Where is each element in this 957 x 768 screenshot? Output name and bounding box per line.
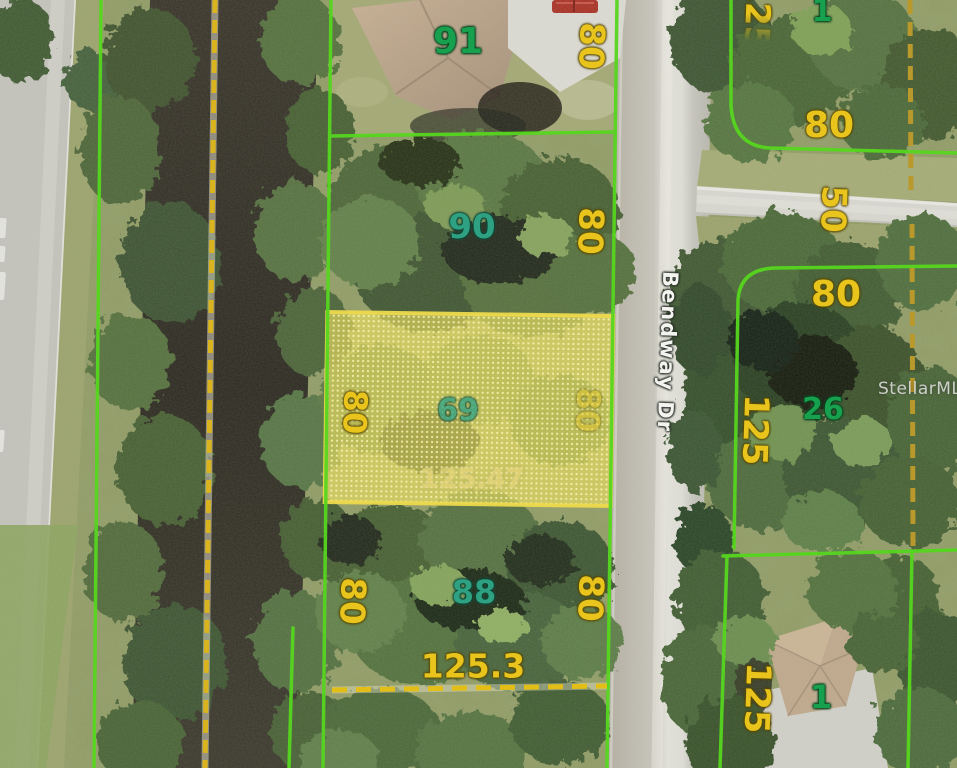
lot-1-top-label: 1 (812, 0, 833, 27)
dim-125-bottom-right: 125 (739, 662, 775, 734)
lot-88-label: 88 (452, 576, 497, 608)
aerial-parcel-map: 91 80 90 80 69 80 80 125.47 88 80 80 125… (0, 0, 957, 768)
dim-80-lot90: 80 (572, 207, 608, 255)
dim-80-lot88-west: 80 (334, 577, 370, 625)
dim-80-mid-right: 80 (811, 277, 861, 313)
dim-50-road: 50 (815, 185, 851, 233)
dim-125-47-lot69: 125.47 (420, 466, 524, 493)
dim-80-lot88-east: 80 (572, 574, 608, 622)
lot-1-bottom-label: 1 (810, 681, 832, 713)
lot-90-label: 90 (448, 210, 495, 244)
dim-125-3-lot88: 125.3 (421, 650, 525, 683)
street-label-bendway-dr: Bendway Dr (654, 271, 681, 434)
lot-69-label: 69 (437, 396, 479, 426)
dim-125-top-right-clipped: 125 (739, 0, 775, 50)
dim-80-top-right: 80 (804, 108, 854, 144)
dim-125-mid-right: 125 (737, 394, 773, 466)
dim-80-lot69-east: 80 (571, 387, 605, 433)
mls-watermark: StellarMLS (878, 379, 957, 399)
lot-26-label: 26 (802, 395, 844, 425)
dim-80-lot69-west: 80 (338, 389, 372, 435)
dim-80-lot91: 80 (573, 22, 609, 70)
east-easement-dash-top (910, 0, 911, 196)
lot-91-label: 91 (433, 24, 483, 60)
